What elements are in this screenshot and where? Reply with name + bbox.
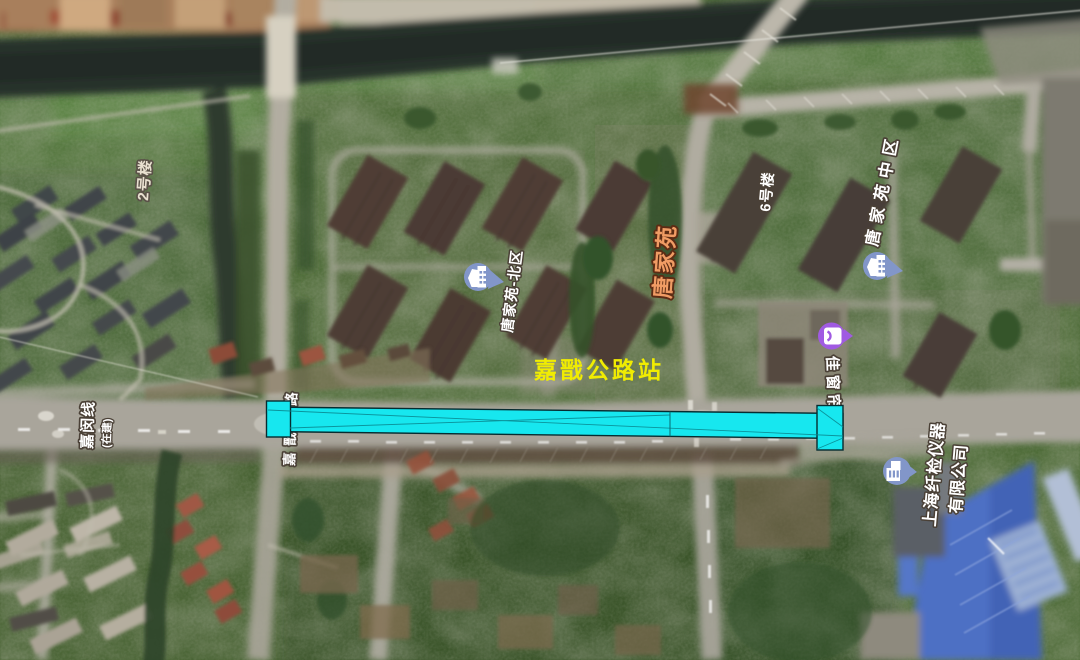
- svg-text:嘉闵线: 嘉闵线: [78, 401, 98, 451]
- svg-text:(在建): (在建): [99, 418, 114, 448]
- svg-text:2号楼: 2号楼: [134, 159, 155, 201]
- svg-text:嘉戬公路站: 嘉戬公路站: [534, 357, 664, 383]
- svg-text:佳窗帘: 佳窗帘: [823, 356, 843, 414]
- svg-text:唐家苑: 唐家苑: [649, 223, 680, 300]
